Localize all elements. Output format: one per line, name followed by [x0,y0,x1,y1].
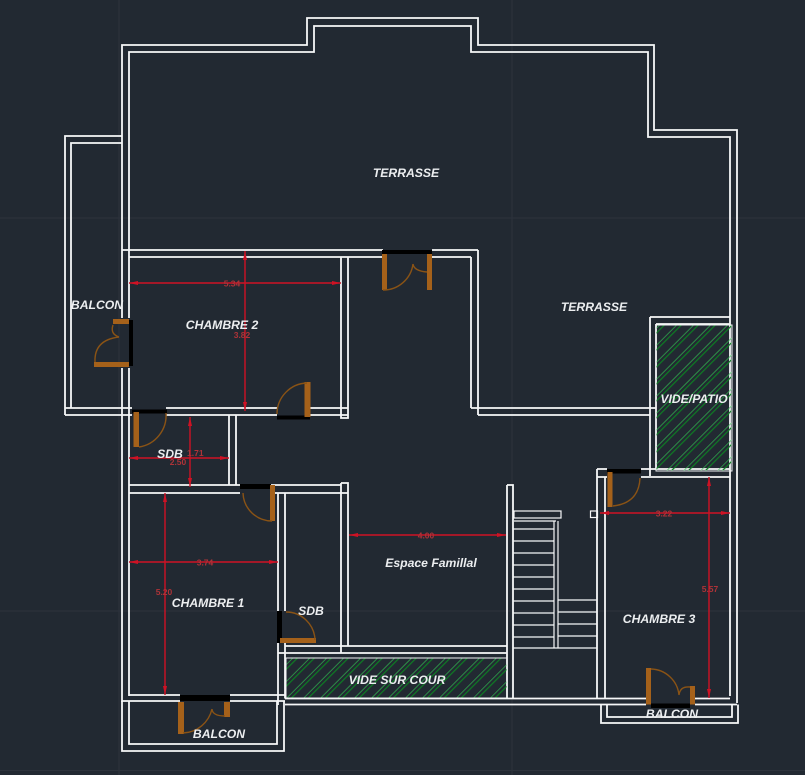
svg-text:TERRASSE: TERRASSE [561,300,628,314]
svg-text:VIDE SUR COUR: VIDE SUR COUR [349,673,446,687]
svg-text:CHAMBRE 3: CHAMBRE 3 [623,612,696,626]
svg-text:3.22: 3.22 [656,509,673,519]
svg-text:Espace Famillal: Espace Famillal [385,556,477,570]
svg-text:3.74: 3.74 [197,558,214,568]
svg-text:BALCON: BALCON [193,727,246,741]
svg-text:VIDE/PATIO: VIDE/PATIO [660,392,728,406]
svg-text:CHAMBRE 2: CHAMBRE 2 [186,318,259,332]
svg-text:5.34: 5.34 [224,279,241,289]
svg-text:BALCON: BALCON [71,298,124,312]
svg-text:5.20: 5.20 [156,587,173,597]
svg-text:CHAMBRE 1: CHAMBRE 1 [172,596,245,610]
svg-text:SDB: SDB [298,604,324,618]
svg-text:BALCON: BALCON [646,707,699,721]
svg-text:1.71: 1.71 [187,448,204,458]
svg-text:TERRASSE: TERRASSE [373,166,440,180]
svg-text:SDB: SDB [157,447,183,461]
svg-text:5.57: 5.57 [702,584,719,594]
svg-text:4.00: 4.00 [418,531,435,541]
